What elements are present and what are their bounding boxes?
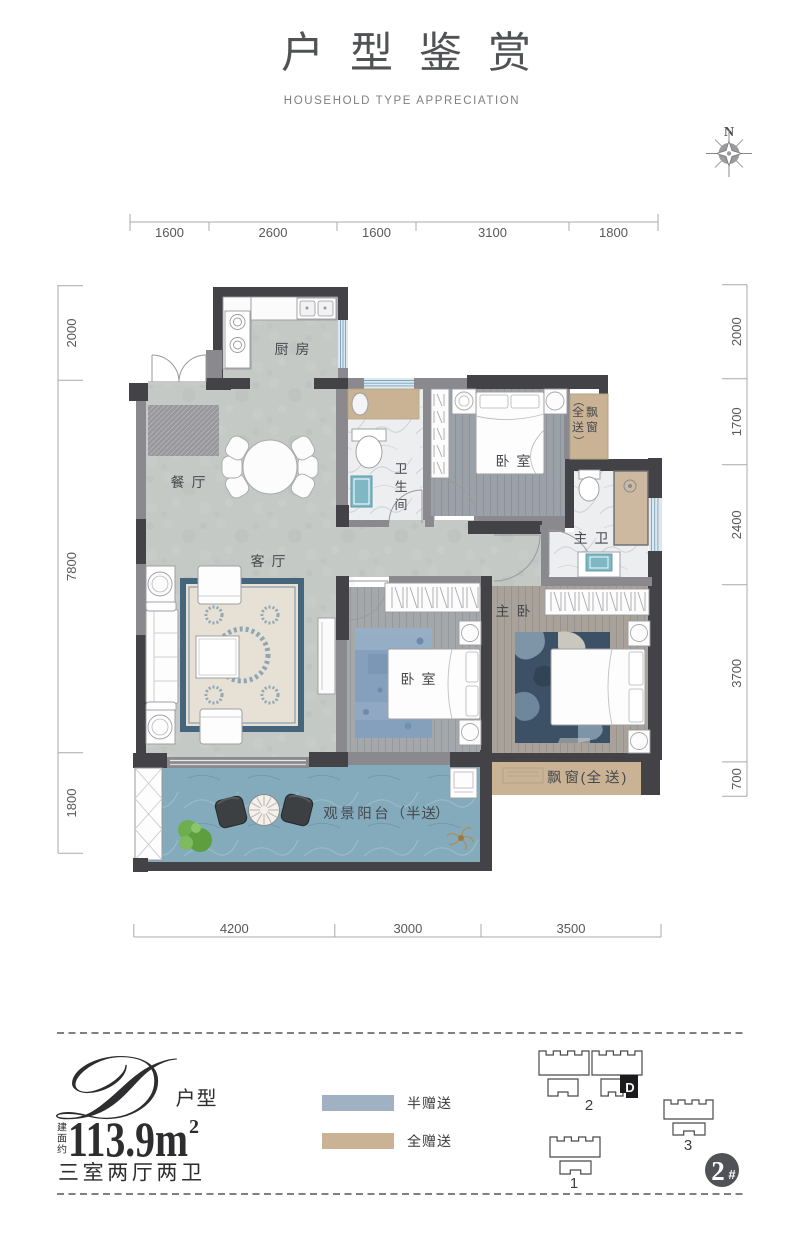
svg-text:2: 2	[585, 1097, 593, 1114]
svg-text:D: D	[625, 1080, 634, 1095]
svg-text:): )	[622, 769, 627, 785]
svg-text:2400: 2400	[729, 510, 744, 539]
svg-text:（: （	[391, 805, 405, 821]
svg-text:3100: 3100	[478, 225, 507, 240]
svg-text:1800: 1800	[599, 225, 628, 240]
svg-text:）: ）	[572, 436, 585, 447]
svg-text:（: （	[572, 396, 585, 407]
svg-text:3: 3	[684, 1137, 692, 1154]
svg-text:3500: 3500	[557, 921, 586, 936]
svg-text:700: 700	[729, 768, 744, 790]
svg-text:1700: 1700	[729, 407, 744, 436]
svg-text:3000: 3000	[393, 921, 422, 936]
svg-text:#: #	[728, 1167, 736, 1182]
svg-text:1600: 1600	[362, 225, 391, 240]
svg-text:4200: 4200	[220, 921, 249, 936]
svg-text:1800: 1800	[64, 789, 79, 818]
svg-text:(: (	[581, 769, 586, 785]
svg-text:1600: 1600	[155, 225, 184, 240]
svg-text:2600: 2600	[259, 225, 288, 240]
svg-text:113.9m: 113.9m	[68, 1111, 188, 1167]
svg-text:HOUSEHOLD TYPE APPRECIATION: HOUSEHOLD TYPE APPRECIATION	[284, 95, 520, 107]
svg-text:2000: 2000	[64, 319, 79, 348]
svg-text:）: ）	[435, 805, 449, 821]
svg-text:1: 1	[570, 1175, 578, 1192]
svg-text:7800: 7800	[64, 552, 79, 581]
svg-text:3700: 3700	[729, 659, 744, 688]
svg-text:2: 2	[711, 1156, 725, 1186]
svg-text:2: 2	[189, 1116, 199, 1138]
svg-text:2000: 2000	[729, 317, 744, 346]
